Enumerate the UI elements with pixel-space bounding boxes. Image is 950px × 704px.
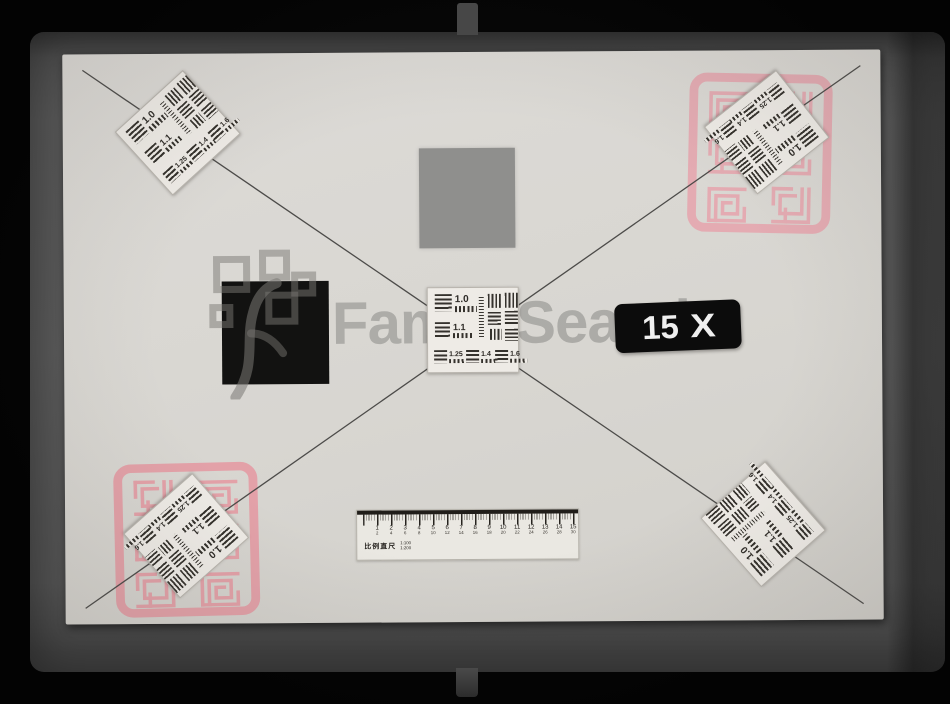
film-notch-bottom (456, 668, 478, 697)
calibration-card: FamilySearch 15 X 123456789101112131415 … (62, 50, 883, 625)
resolution-target-center: 1.0 1.1 1.25 1.4 1.6 (427, 287, 520, 374)
bar-pattern-block (758, 159, 777, 178)
ruler-sub-number: 10 (428, 531, 438, 535)
bar-pattern-block (505, 293, 518, 308)
ruler-sub-number: 2 (372, 532, 382, 536)
ruler-sub-number: 12 (442, 531, 452, 535)
bar-pattern-block (731, 507, 749, 525)
ruler-sub-number: 26 (540, 531, 550, 535)
horizontal-bars (466, 350, 479, 363)
horizontal-bars (434, 350, 447, 363)
horizontal-bars (772, 537, 793, 558)
ruler-sub-number: 28 (554, 530, 564, 534)
bar-pattern-block (180, 562, 199, 581)
bar-pattern-block (165, 87, 184, 106)
ruler-sub-number: 30 (568, 530, 578, 534)
vernier-strip (479, 297, 484, 339)
ruler-label-row: 比例直尺 1:100 1:200 (364, 541, 415, 551)
vertical-bars (453, 333, 473, 338)
ruler-scale-2: 1:200 (400, 547, 411, 551)
bar-pattern-block (505, 311, 518, 325)
bar-pattern-block (488, 294, 501, 308)
bar-pattern-block (177, 101, 195, 119)
ruler-sub-number: 6 (400, 531, 410, 535)
vertical-bars (455, 306, 477, 312)
group-label: 1.25 (449, 351, 463, 358)
familysearch-tree-icon (204, 249, 320, 400)
ruler-sub-number: 16 (470, 531, 480, 535)
magnification-value: 15 (641, 310, 679, 344)
ruler-label: 比例直尺 (364, 541, 396, 551)
bar-pattern-block (158, 539, 174, 555)
vertical-bars (510, 359, 527, 363)
ruler-sub-number: 22 (512, 531, 522, 535)
bar-pattern-block (505, 329, 518, 341)
microfilm-scan: FamilySearch 15 X 123456789101112131415 … (0, 0, 950, 704)
group-label: 1.0 (455, 295, 469, 305)
magnification-badge: 15 X (614, 299, 742, 353)
group-label: 1.1 (453, 323, 466, 332)
horizontal-bars (435, 322, 450, 337)
ruler-scale-1: 1:100 (400, 542, 411, 546)
horizontal-bars (435, 294, 452, 311)
ruler-sub-number: 24 (526, 531, 536, 535)
ruler-sub-number: 14 (456, 531, 466, 535)
scale-ruler: 123456789101112131415 246810121416182022… (356, 508, 579, 560)
ruler-scale-legend: 1:100 1:200 (400, 541, 415, 551)
bar-pattern-block (738, 135, 754, 151)
bar-pattern-block (748, 145, 766, 163)
bar-pattern-block (743, 496, 759, 512)
ruler-sub-number: 8 (414, 531, 424, 535)
film-notch-top (457, 3, 478, 35)
bar-pattern-block (488, 312, 501, 325)
bar-pattern-block (190, 113, 206, 129)
times-symbol: X (689, 308, 716, 342)
group-label: 1.6 (510, 351, 520, 358)
horizontal-bars (495, 350, 508, 363)
gray-density-patch (419, 148, 516, 249)
vertical-bars (449, 359, 466, 363)
ruler-numbers-sub: 24681012141618202224262830 (357, 530, 578, 537)
ruler-sub-number: 18 (484, 531, 494, 535)
ruler-sub-number: 20 (498, 531, 508, 535)
group-label: 1.4 (481, 351, 491, 358)
resolution-chart-card: 1.0 1.1 1.25 1.4 1.6 (427, 287, 520, 374)
bar-pattern-block (490, 329, 502, 340)
bar-pattern-block (168, 549, 186, 567)
ruler-sub-number: 4 (386, 531, 396, 535)
